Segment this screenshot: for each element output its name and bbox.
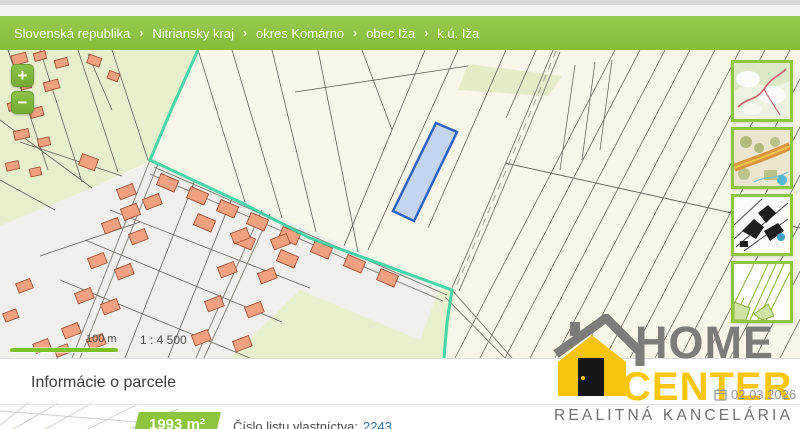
bw-cadastre-preview-image: [734, 197, 790, 253]
breadcrumb-item-okres[interactable]: okres Komárno: [256, 26, 344, 41]
lv-number-link[interactable]: 2243: [363, 419, 392, 429]
scale-ratio-label: 1 : 4 500: [140, 333, 187, 347]
map-zoom-controls: + −: [11, 64, 34, 114]
cadastral-basemap: [0, 50, 800, 358]
breadcrumb: Slovenská republika › Nitriansky kraj › …: [0, 16, 800, 50]
cadastral-map[interactable]: + − 100 m 1 : 4 500: [0, 50, 800, 358]
basemap-thumbnail-topo[interactable]: [731, 60, 793, 122]
plus-icon: +: [18, 66, 28, 85]
parcel-info-panel: Informácie o parcele 1993 m² Číslo listu…: [0, 358, 800, 429]
breadcrumb-separator: ›: [139, 26, 143, 40]
zoom-in-button[interactable]: +: [11, 64, 34, 87]
breadcrumb-separator: ›: [243, 26, 247, 40]
basemap-thumbnails: [731, 60, 793, 323]
panel-divider: [0, 404, 800, 405]
topo-preview-image: [734, 63, 790, 119]
basemap-thumbnail-cadastre-green[interactable]: [731, 261, 793, 323]
scale-bar-label: 100 m: [86, 333, 117, 345]
zoom-out-button[interactable]: −: [11, 91, 34, 114]
lv-label: Číslo listu vlastníctva:: [233, 419, 358, 429]
green-cadastre-preview-image: [734, 264, 790, 320]
breadcrumb-separator: ›: [353, 26, 357, 40]
breadcrumb-item-ku[interactable]: k.ú. Iža: [437, 26, 479, 41]
minus-icon: −: [18, 93, 28, 112]
breadcrumb-separator: ›: [424, 26, 428, 40]
basemap-thumbnail-cadastre-bw[interactable]: [731, 194, 793, 256]
panel-title: Informácie o parcele: [31, 374, 176, 392]
scale-bar: [10, 348, 118, 352]
breadcrumb-item-republika[interactable]: Slovenská republika: [14, 26, 130, 41]
area-badge: 1993 m²: [133, 412, 221, 429]
map-scale: 100 m 1 : 4 500: [10, 333, 210, 352]
breadcrumb-item-kraj[interactable]: Nitriansky kraj: [152, 26, 234, 41]
window-sub-strip: [0, 5, 800, 16]
breadcrumb-item-obec[interactable]: obec Iža: [366, 26, 415, 41]
basemap-thumbnail-terrain[interactable]: [731, 127, 793, 189]
screen: Slovenská republika › Nitriansky kraj › …: [0, 0, 800, 429]
ownership-sheet-row: Číslo listu vlastníctva:2243: [233, 419, 392, 429]
terrain-preview-image: [734, 130, 790, 186]
